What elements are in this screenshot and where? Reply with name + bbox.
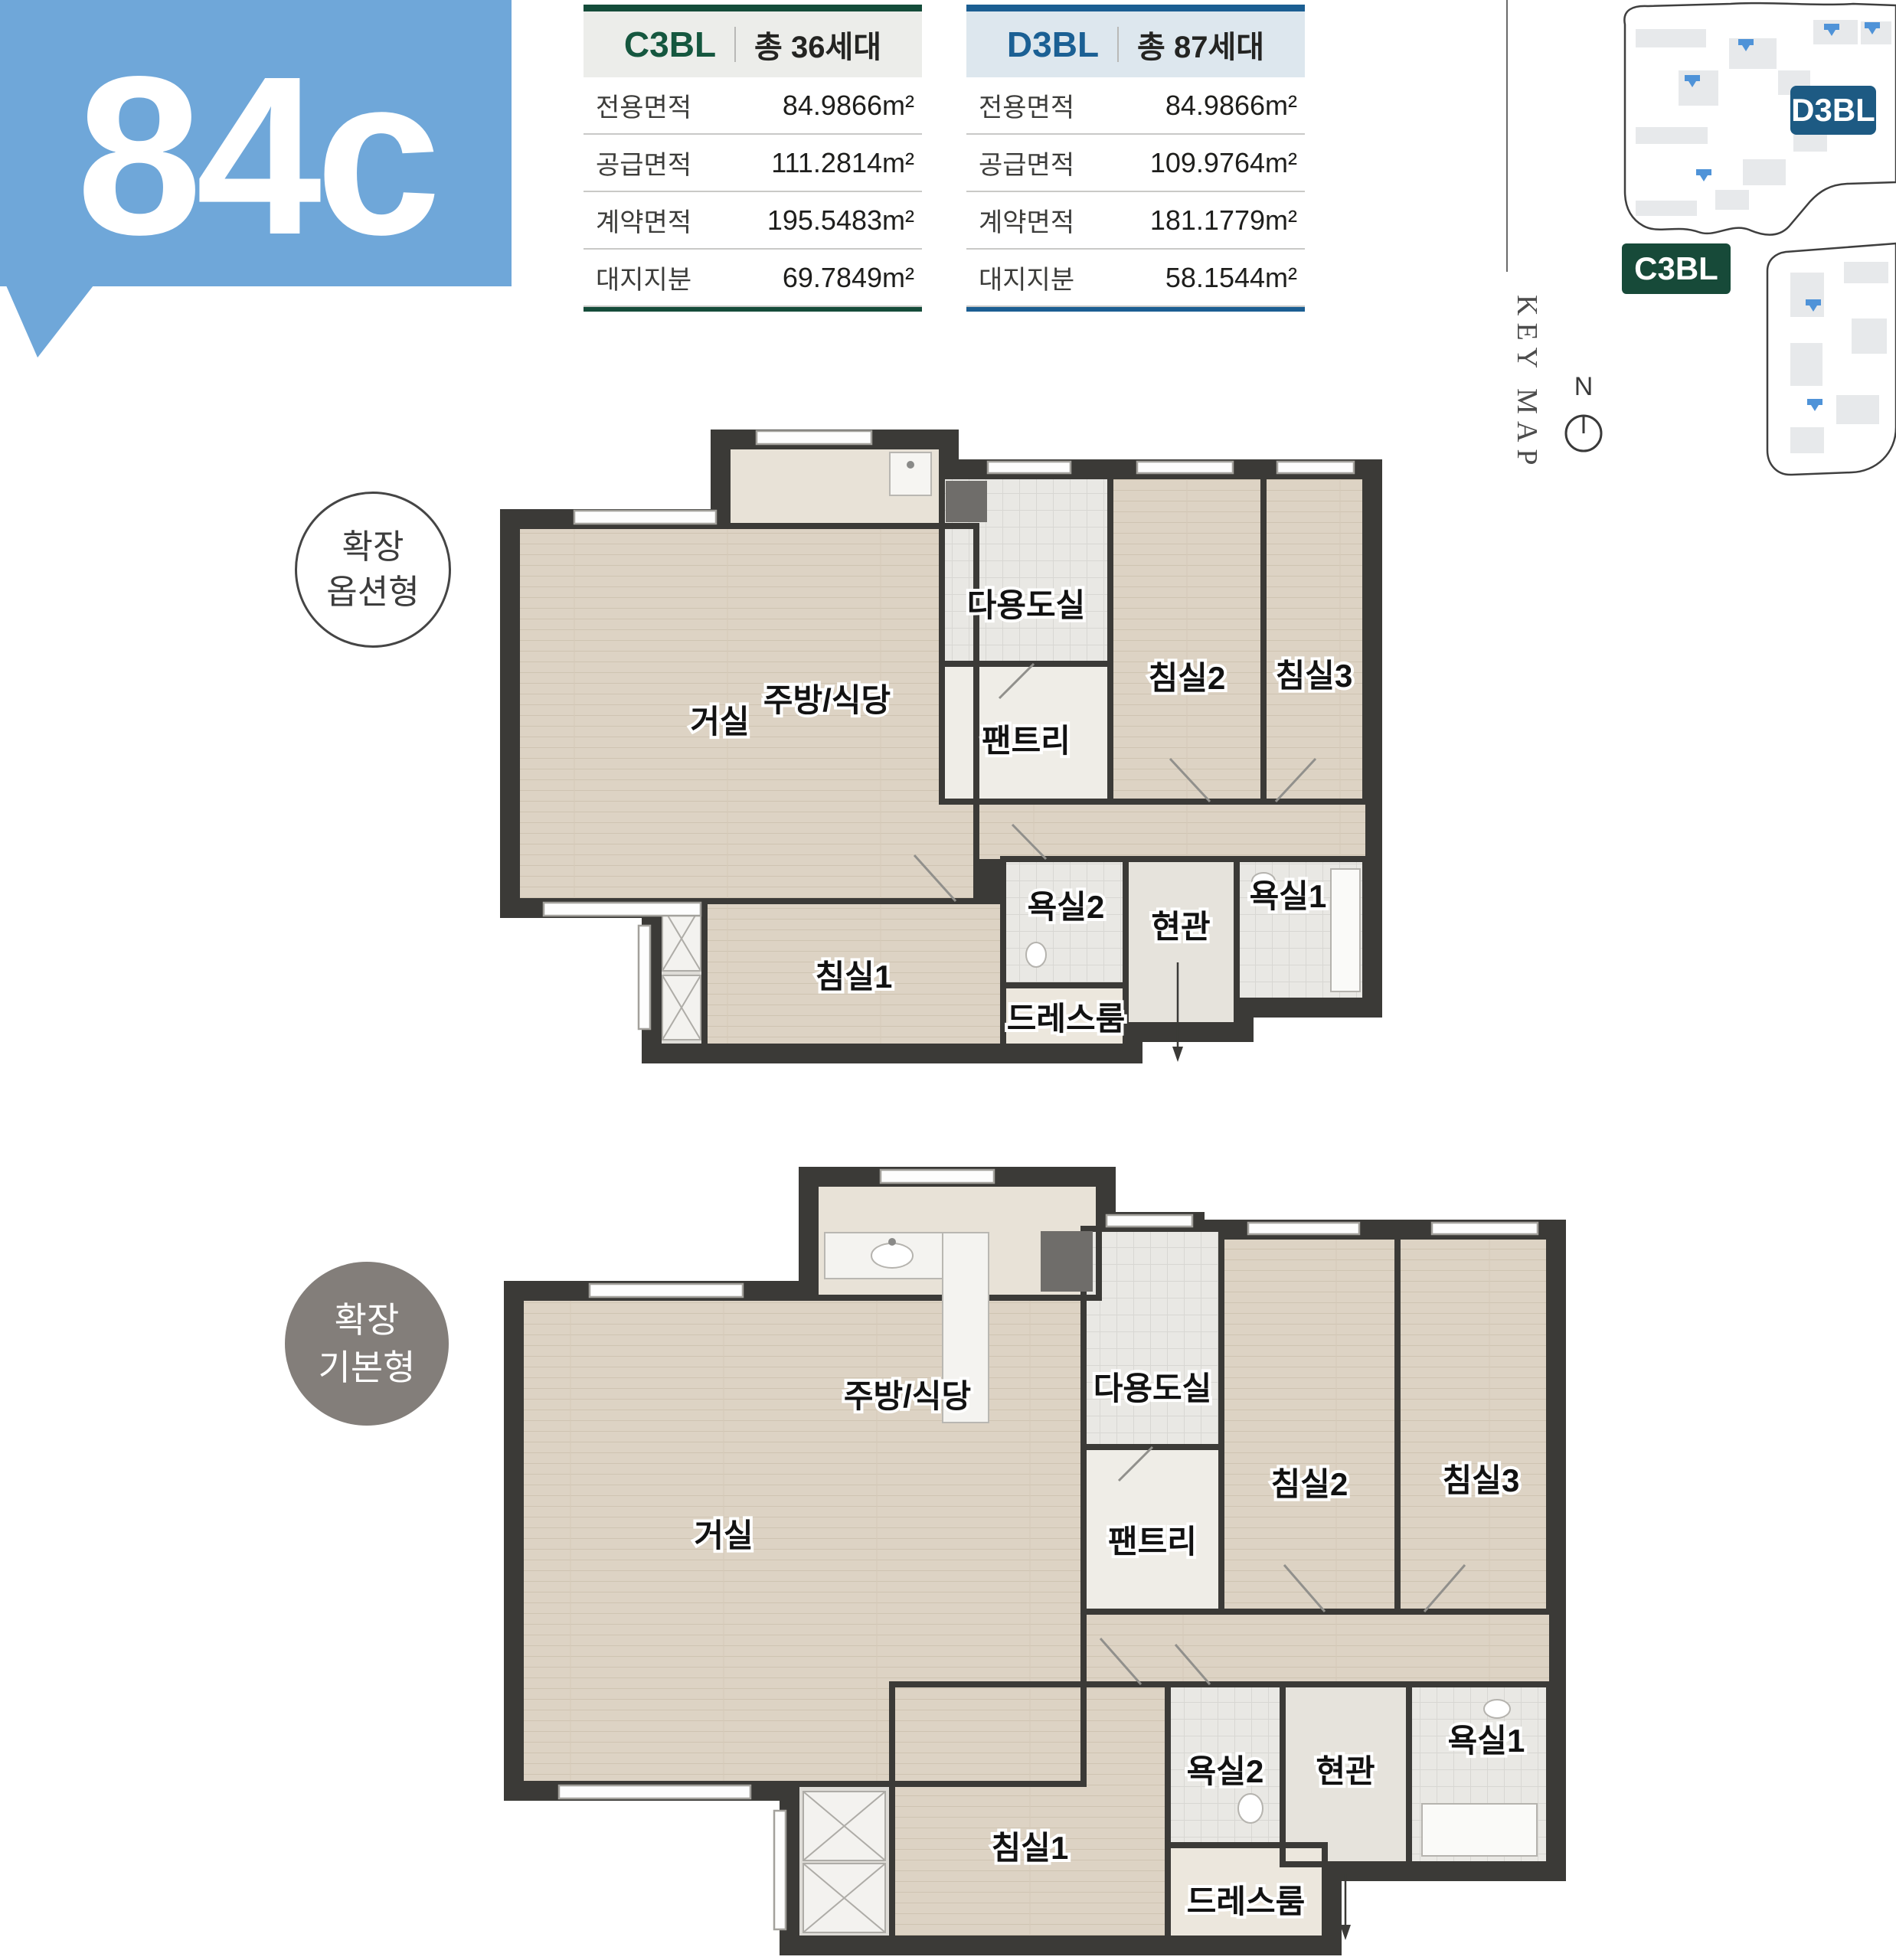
bedroom3-floor (1263, 476, 1365, 802)
window (1107, 1215, 1192, 1227)
building-footprint (1790, 427, 1824, 453)
building-footprint (1813, 20, 1858, 44)
table-header: C3BL 총 36세대 (584, 11, 922, 77)
building-footprint (1636, 127, 1708, 144)
area-value: 195.5483m² (767, 204, 914, 237)
building-footprint (1852, 318, 1887, 354)
room-label-pantry: 팬트리 (1108, 1524, 1197, 1560)
room-label-bedroom3: 침실3 (1443, 1462, 1520, 1498)
faucet (888, 1238, 896, 1246)
window (1248, 1223, 1359, 1234)
room-label-living: 거실 (694, 1517, 753, 1553)
area-label: 전용면적 (979, 87, 1074, 124)
block-name: D3BL (1007, 24, 1099, 65)
bathtub (1422, 1804, 1537, 1856)
spec-table-c3bl: C3BL 총 36세대 전용면적 84.9866m² 공급면적 111.2814… (584, 5, 922, 312)
table-row: 대지지분 69.7849m² (584, 250, 922, 307)
building-footprint (1790, 343, 1822, 386)
bedroom2-floor (1110, 476, 1263, 802)
floorplan-basic: 거실 주방/식당 다용도실 팬트리 침실2 침실3 욕실1 현관 욕실2 침실1… (494, 1164, 1566, 1960)
corridor-floor (976, 802, 1365, 859)
room-label-kitchen: 주방/식당 (763, 682, 891, 718)
room-label-entry: 현관 (1316, 1753, 1375, 1789)
bedroom3-floor (1397, 1236, 1549, 1612)
svg-text:D3BL: D3BL (1791, 92, 1875, 128)
table-row: 전용면적 84.9866m² (966, 77, 1305, 135)
spec-table-d3bl: D3BL 총 87세대 전용면적 84.9866m² 공급면적 109.9764… (966, 5, 1305, 312)
toilet (1238, 1794, 1263, 1823)
svg-text:C3BL: C3BL (1634, 250, 1718, 286)
window (1432, 1223, 1538, 1234)
table-accent-top (584, 5, 922, 11)
room-label-pantry: 팬트리 (982, 723, 1071, 759)
room-label-kitchen: 주방/식당 (844, 1378, 971, 1414)
block-label-d3bl: D3BL (1790, 86, 1876, 135)
badge-tail (6, 286, 93, 358)
header-divider (734, 27, 736, 62)
building-footprint (1636, 201, 1697, 216)
table-row: 공급면적 109.9764m² (966, 135, 1305, 192)
area-value: 111.2814m² (771, 147, 914, 179)
room-label-bath1: 욕실1 (1448, 1723, 1525, 1759)
compass-icon: N (1566, 372, 1601, 451)
corridor-floor (1084, 1612, 1549, 1684)
area-label: 대지지분 (979, 259, 1074, 296)
room-label-bedroom1: 침실1 (992, 1830, 1069, 1866)
room-label-dressroom: 드레스룸 (1007, 1001, 1126, 1037)
building-footprint (1844, 262, 1888, 283)
window (881, 1170, 994, 1183)
shaft (946, 481, 987, 522)
room-label-bath1: 욕실1 (1250, 878, 1327, 914)
area-value: 84.9866m² (1165, 90, 1297, 122)
area-value: 58.1544m² (1165, 262, 1297, 294)
room-label-bath2: 욕실2 (1187, 1753, 1264, 1789)
window (988, 462, 1071, 473)
room-label-utility: 다용도실 (967, 587, 1086, 623)
block-label-c3bl: C3BL (1622, 243, 1731, 294)
floorplan-option: 거실 주방/식당 다용도실 팬트리 침실2 침실3 욕실1 현관 욕실2 침실1… (498, 426, 1382, 1066)
plan-type-line: 옵션형 (326, 570, 419, 615)
room-label-entry: 현관 (1151, 909, 1210, 945)
area-label: 전용면적 (596, 87, 691, 124)
room-label-bedroom2: 침실2 (1149, 660, 1226, 696)
plan-type-line: 확장 (335, 1296, 400, 1344)
window (544, 903, 701, 916)
room-label-bedroom1: 침실1 (816, 959, 893, 995)
building-footprint (1790, 273, 1824, 317)
area-value: 84.9866m² (783, 90, 914, 122)
table-row: 계약면적 195.5483m² (584, 192, 922, 250)
table-accent-bottom (584, 307, 922, 312)
washbasin (1484, 1700, 1510, 1718)
window (574, 511, 716, 524)
bathtub (1331, 869, 1360, 991)
header-divider (1117, 27, 1119, 62)
window (757, 431, 871, 444)
block-name: C3BL (624, 24, 716, 65)
area-value: 69.7849m² (783, 262, 914, 294)
keymap: KEY MAP N D3BL (1486, 0, 1896, 490)
table-row: 공급면적 111.2814m² (584, 135, 922, 192)
area-label: 공급면적 (596, 144, 691, 181)
building-footprint (1743, 159, 1786, 185)
room-label-bedroom3: 침실3 (1276, 658, 1353, 694)
room-label-bath2: 욕실2 (1028, 889, 1105, 925)
area-label: 대지지분 (596, 259, 691, 296)
plan-type-circle-option: 확장 옵션형 (295, 492, 451, 648)
bedroom2-floor (1221, 1236, 1397, 1612)
room-label-utility: 다용도실 (1093, 1370, 1212, 1406)
building-footprint (1636, 29, 1706, 47)
window (1277, 462, 1354, 473)
area-label: 계약면적 (596, 201, 691, 239)
room-label-bedroom2: 침실2 (1271, 1466, 1348, 1502)
room-label-living: 거실 (690, 704, 749, 740)
window (590, 1284, 743, 1297)
building-footprint (1836, 395, 1879, 424)
keymap-title: KEY MAP (1511, 295, 1543, 472)
table-row: 계약면적 181.1779m² (966, 192, 1305, 250)
bedroom1-floor (892, 1684, 1168, 1939)
plan-type-line: 확장 (342, 524, 404, 570)
area-label: 공급면적 (979, 144, 1074, 181)
unit-type-label: 84c (77, 43, 435, 269)
unit-type-badge: 84c (0, 0, 512, 286)
total-units: 총 87세대 (1137, 22, 1264, 67)
window (559, 1785, 750, 1798)
table-accent-top (966, 5, 1305, 11)
area-label: 계약면적 (979, 201, 1074, 239)
toilet (1026, 942, 1046, 967)
area-value: 181.1779m² (1150, 204, 1297, 237)
faucet (907, 461, 914, 469)
building-footprint (1715, 190, 1749, 210)
sink-unit (890, 452, 931, 495)
table-row: 전용면적 84.9866m² (584, 77, 922, 135)
shaft (1041, 1231, 1093, 1292)
svg-text:N: N (1574, 372, 1594, 401)
total-units: 총 36세대 (754, 22, 881, 67)
room-label-dressroom: 드레스룸 (1187, 1883, 1306, 1919)
area-value: 109.9764m² (1150, 147, 1297, 179)
utility-floor (1084, 1229, 1221, 1447)
kitchen-sink (871, 1243, 913, 1268)
table-accent-bottom (966, 307, 1305, 312)
window (639, 926, 650, 1029)
plan-type-circle-basic: 확장 기본형 (285, 1262, 449, 1426)
table-header: D3BL 총 87세대 (966, 11, 1305, 77)
plan-type-line: 기본형 (319, 1344, 416, 1391)
window (774, 1811, 786, 1929)
table-row: 대지지분 58.1544m² (966, 250, 1305, 307)
entry-arrow (1340, 1874, 1351, 1940)
window (1137, 462, 1233, 473)
